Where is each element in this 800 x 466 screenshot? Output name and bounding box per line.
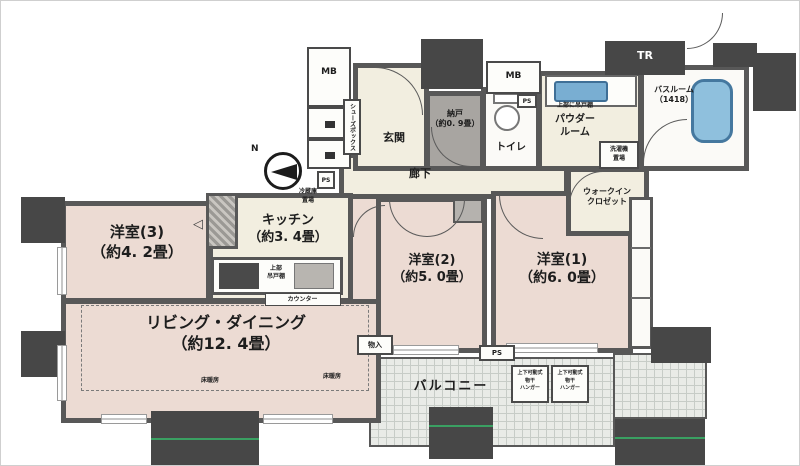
label-bath: バスルーム（1418） [643,85,705,106]
washbasin-sink-icon [554,81,608,102]
stove-icon [219,263,259,289]
meter-box-2: MB [486,61,541,94]
hanger-annotation-box: 上下可動式物干ハンガー [551,365,589,403]
hanger-annotation-box: 上下可動式物干ハンガー [511,365,549,403]
meter-box-1-label: MB [309,67,349,79]
shoes-box-label: シューズボックス [348,103,357,151]
pillar [753,53,796,111]
label-floor-heating-right: 床暖房 [317,373,347,381]
window [263,414,333,424]
window [57,247,67,295]
trunk-room-label: TR [605,49,685,63]
pillar [615,419,705,466]
laundry-space: 洗濯機置場 [599,141,639,169]
shoes-box: シューズボックス [343,99,361,155]
mono-ire-box: 物入 [357,335,393,355]
label-powder-shelf: 上部に吊戸棚 [542,102,608,110]
compass-needle-icon [271,164,297,180]
window-balcony-door [393,345,459,355]
scan-artifact-line [615,437,705,439]
label-balcony: バルコニー [403,379,499,396]
scan-artifact-line [429,425,493,427]
laundry-label: 洗濯機置場 [601,145,637,163]
label-yoshitsu2: 洋室(2)（約5. 0畳） [381,253,483,287]
meter-box-1: MB [307,47,351,107]
meter-box-2-label: MB [488,71,539,83]
closet-door-line [631,297,651,299]
pillar [651,327,711,363]
pipe-space-top: PS [517,94,537,108]
closet-strip [629,197,653,349]
label-toilet: トイレ [485,141,537,154]
floor-plan: TR MB MB PS PS PS シューズボックス 洗濯機置場 ◁ 物入 [0,0,800,466]
label-floor-heating-left: 床暖房 [195,377,225,385]
label-nando: 納戸（約0. 9畳） [427,109,483,130]
label-kitchen: キッチン（約3. 4畳） [229,213,347,247]
label-rouka: 廊下 [397,167,443,181]
kitchen-shelf-label: 上部吊戸棚 [259,265,293,282]
label-fridge: 冷蔵庫置場 [293,187,323,205]
label-living: リビング・ダイニング（約12. 4畳） [96,313,356,355]
scan-artifact-line [151,438,259,440]
window [101,414,147,424]
label-yoshitsu1: 洋室(1)（約6. 0畳） [499,251,625,287]
label-wic: ウォークインクロゼット [569,187,645,208]
label-powder: パウダールーム [543,113,607,139]
closet-door-line [631,247,651,249]
mono-ire-label: 物入 [359,341,391,350]
counter-label: カウンター [266,296,339,304]
pipe-space-balcony: PS [479,345,515,361]
wall-segment [713,43,757,67]
sink-icon [294,263,334,289]
label-yoshitsu3: 洋室(3)（約4. 2畳） [71,223,203,262]
compass-north-label: N [251,144,259,156]
window-balcony-door [506,343,598,353]
label-genkan: 玄関 [371,131,417,145]
window [57,345,67,401]
pillar [421,39,483,89]
pillar [429,407,493,459]
toilet-bowl-icon [494,105,520,131]
pillar [21,197,65,243]
counter-box: カウンター [265,293,341,306]
